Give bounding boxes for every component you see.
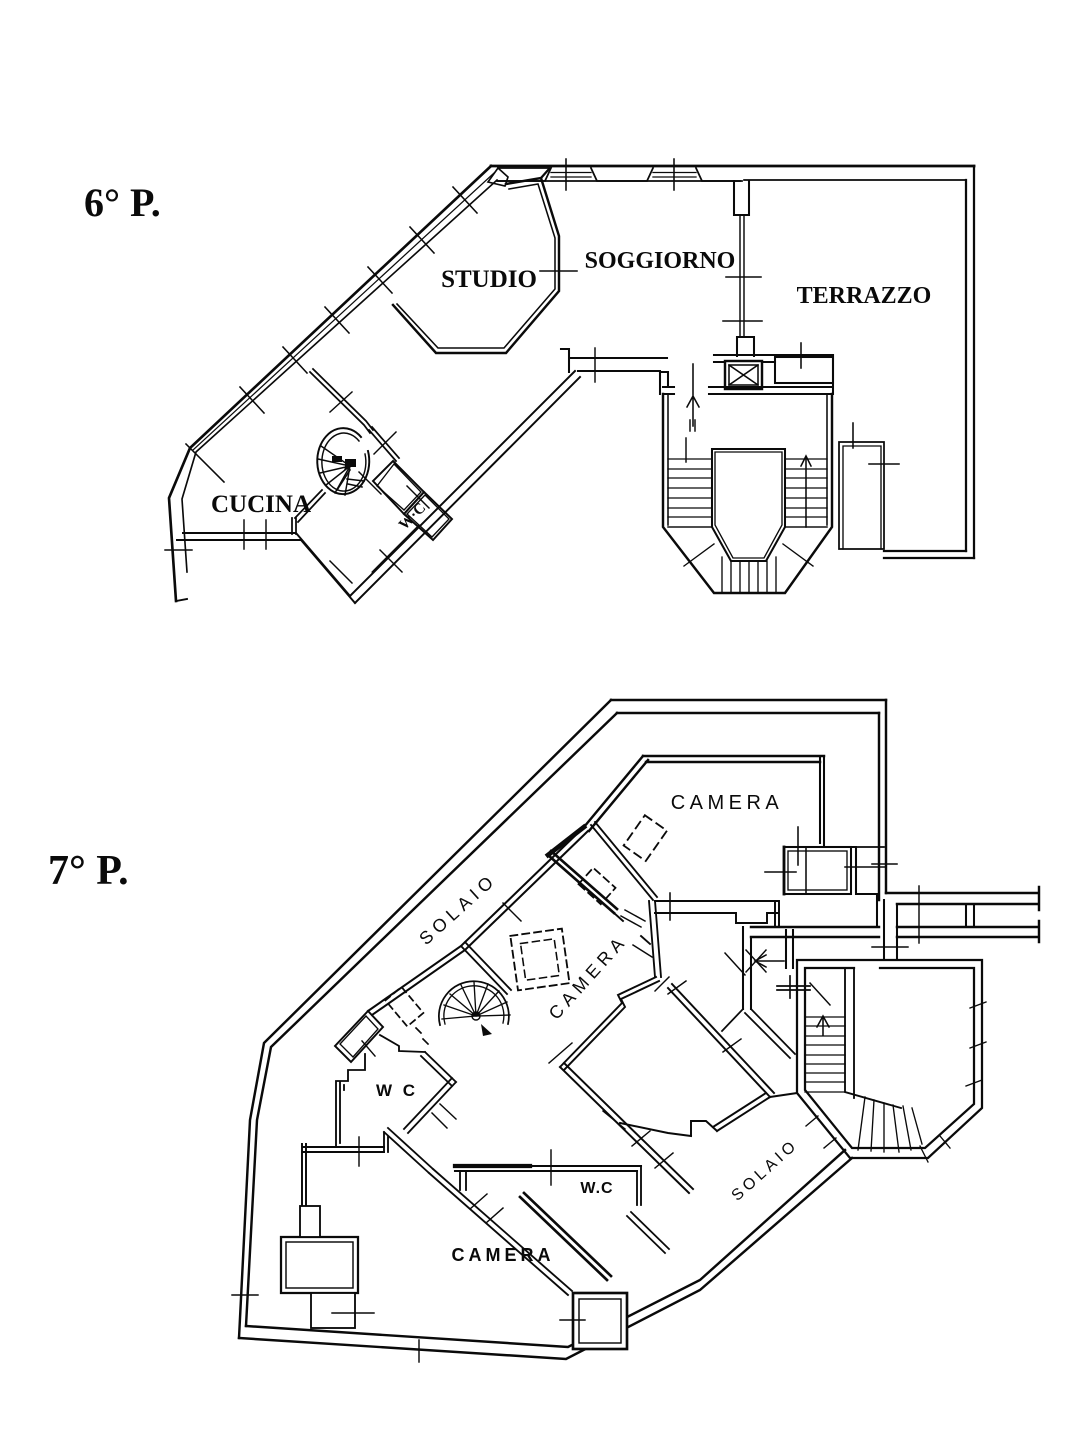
svg-text:CUCINA: CUCINA [211, 491, 311, 518]
svg-text:6° P.: 6° P. [84, 180, 161, 225]
svg-text:SOGGIORNO: SOGGIORNO [585, 248, 736, 274]
svg-text:STUDIO: STUDIO [441, 266, 537, 293]
svg-text:CAMERA: CAMERA [671, 792, 784, 814]
svg-text:TERRAZZO: TERRAZZO [797, 283, 932, 309]
svg-text:7° P.: 7° P. [48, 848, 129, 894]
svg-text:W.C: W.C [580, 1180, 613, 1197]
svg-text:CAMERA: CAMERA [452, 1245, 555, 1265]
svg-text:W C: W C [376, 1081, 418, 1100]
